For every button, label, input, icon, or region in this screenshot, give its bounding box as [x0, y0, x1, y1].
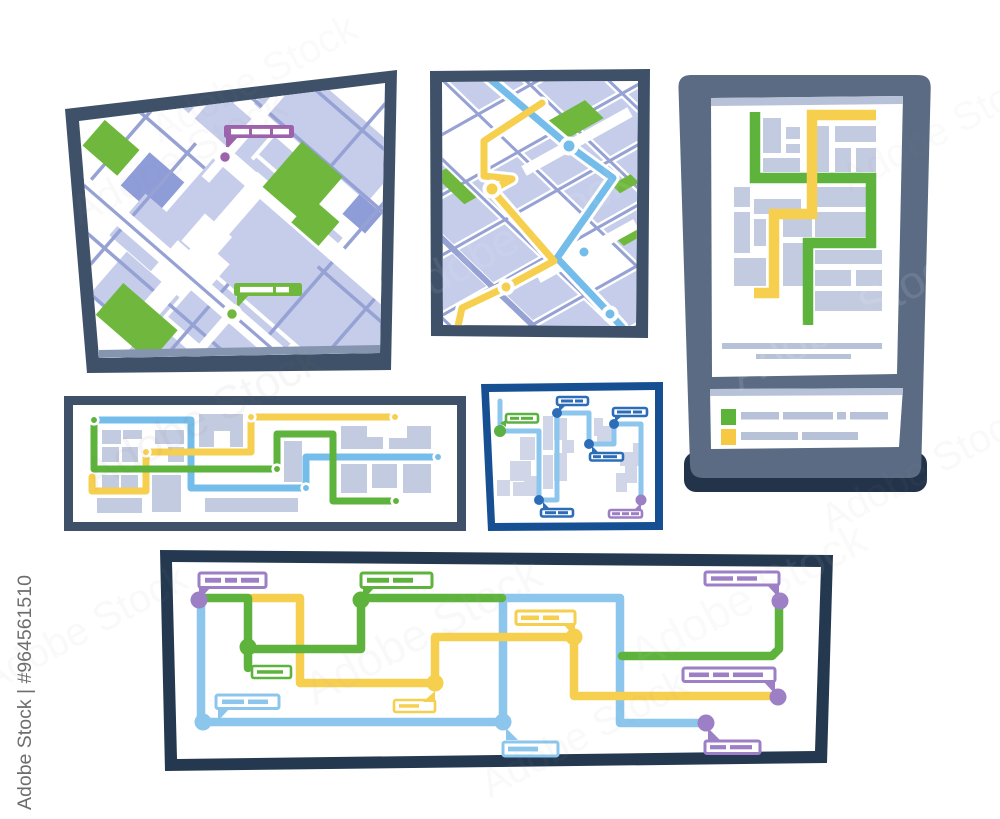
svg-text:Adobe Stock | #964561510: Adobe Stock | #964561510 — [14, 575, 36, 810]
